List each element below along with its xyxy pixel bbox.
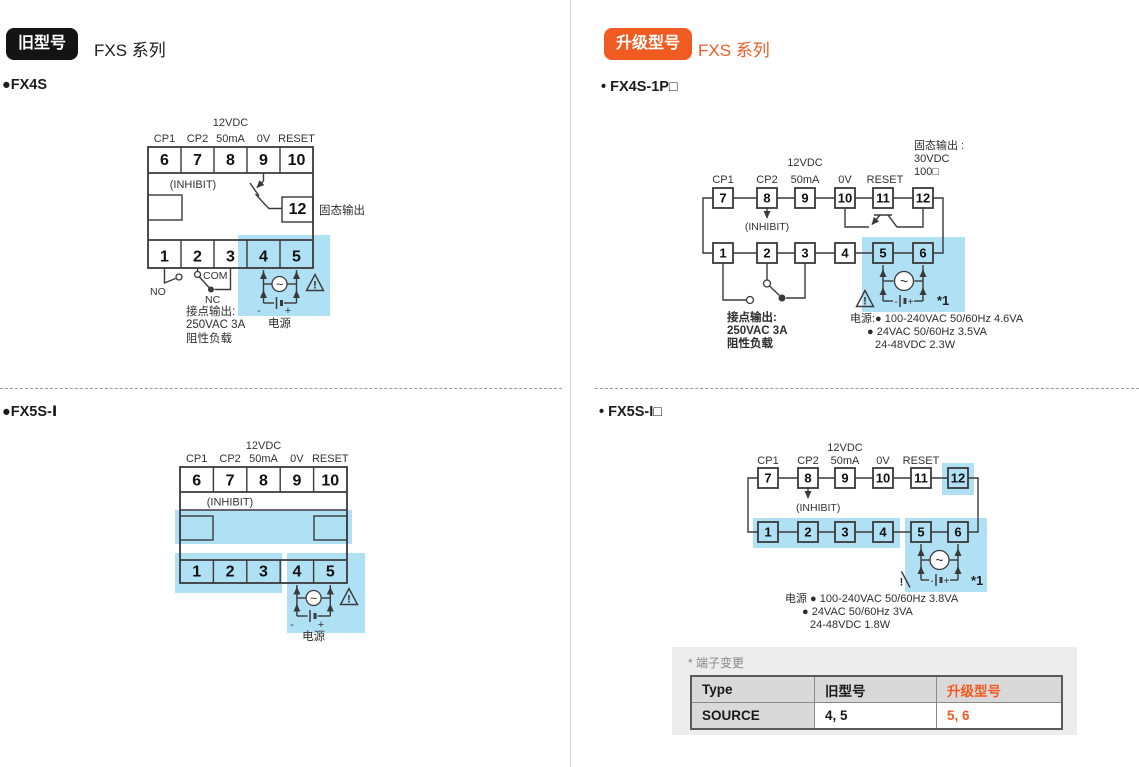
terminal-number: 2	[193, 249, 202, 266]
header-upgraded-model: 升级型号	[937, 676, 1063, 703]
svg-text:!: !	[347, 594, 351, 606]
ac-mark: ~	[276, 277, 284, 292]
terminal-number: 5	[879, 246, 886, 261]
header-type: Type	[691, 676, 815, 703]
terminal-number: 9	[841, 471, 848, 486]
signal-label-cp1: CP1	[154, 133, 175, 145]
table-row: SOURCE 4, 5 5, 6	[691, 703, 1062, 730]
plus-mark: +	[318, 619, 324, 631]
svg-text:!: !	[900, 577, 904, 589]
inhibit-label: (INHIBIT)	[170, 179, 216, 191]
terminal-number: 10	[288, 152, 306, 169]
section-title-fx5s: ●FX5S-Ⅰ	[2, 404, 57, 420]
terminal-number: 1	[192, 564, 201, 581]
upgraded-model-badge: 升级型号	[604, 28, 692, 60]
terminal-number: 10	[876, 471, 890, 486]
terminal-number: 3	[226, 249, 235, 266]
terminal-number: 3	[259, 564, 268, 581]
transistor-symbol	[845, 208, 869, 227]
terminal-number: 5	[292, 249, 301, 266]
terminal-number: 7	[719, 191, 726, 206]
terminal-number: 5	[917, 525, 924, 540]
contact-output-note: 阻性负载	[727, 336, 773, 350]
power-spec-line: 电源:● 100-240VAC 50/60Hz 4.6VA	[850, 311, 1024, 325]
terminal-number: 3	[801, 246, 808, 261]
terminal-number: 8	[226, 152, 235, 169]
inhibit-label: (INHIBIT)	[207, 497, 253, 509]
table-header-row: Type 旧型号 升级型号	[691, 676, 1062, 703]
terminal-number: 11	[914, 471, 928, 486]
terminal-number: 5	[326, 564, 335, 581]
fx5s-i-wiring-diagram: 12VDC CP1 CP2 50mA 0V RESET	[740, 438, 1030, 638]
plus-mark: +	[944, 576, 950, 587]
contact-output-note: 阻性负载	[186, 331, 232, 345]
contact-output-note: 接点输出:	[727, 310, 777, 324]
power-label: 电源	[302, 629, 325, 643]
minus-mark: -	[894, 297, 897, 308]
signal-label-cp1: CP1	[186, 453, 207, 465]
terminal-number: 4	[259, 249, 268, 266]
ssr-output-label: 固态输出	[319, 203, 365, 217]
inhibit-label: (INHIBIT)	[745, 221, 789, 233]
power-spec-line: 24-48VDC 1.8W	[810, 619, 891, 631]
transistor-symbol	[250, 173, 282, 209]
rating-label: 12VDC	[827, 442, 863, 454]
right-section-separator	[595, 388, 1139, 389]
terminal-number: 7	[764, 471, 771, 486]
signal-label-0v: 0V	[257, 133, 271, 145]
terminal-number: 10	[838, 191, 852, 206]
terminal-number: 4	[879, 525, 887, 540]
fx4s-old-wiring-diagram: 12VDC CP1 CP2 50mA 0V RESET 6 7 8 9 10 (…	[138, 112, 438, 352]
signal-label-cp2: CP2	[756, 174, 777, 186]
terminal-change-panel: * 端子变更 Type 旧型号 升级型号 SOURCE 4, 5 5, 6	[672, 647, 1077, 735]
ac-mark: ~	[935, 552, 943, 568]
ssr-output-label: 100□	[914, 166, 939, 178]
terminal-number: 1	[764, 525, 771, 540]
terminal-number: 10	[321, 473, 339, 490]
rating-label: 12VDC	[787, 157, 823, 169]
terminal-number: 8	[259, 473, 268, 490]
ssr-output-label: 固态输出 :	[914, 138, 964, 152]
signal-label-reset: RESET	[867, 174, 904, 186]
terminal-number: 6	[192, 473, 201, 490]
minus-mark: -	[930, 576, 933, 587]
signal-label-50ma: 50mA	[831, 455, 860, 467]
header-old-model: 旧型号	[815, 676, 937, 703]
terminal-number: 9	[259, 152, 268, 169]
contact-output-note: 250VAC 3A	[727, 325, 788, 337]
left-section-separator	[0, 388, 562, 389]
rating-label: 12VDC	[213, 117, 249, 129]
terminal-number: 2	[763, 246, 770, 261]
section-title-fx4s: ●FX4S	[2, 77, 47, 93]
signal-label-cp2: CP2	[219, 453, 240, 465]
terminal-number: 1	[719, 246, 726, 261]
signal-label-50ma: 50mA	[216, 133, 245, 145]
terminal-number: 6	[919, 246, 926, 261]
signal-label-50ma: 50mA	[791, 174, 820, 186]
terminal-number: 11	[876, 191, 890, 206]
old-series-title: FXS 系列	[94, 36, 166, 61]
signal-label-cp2: CP2	[187, 133, 208, 145]
plus-mark: +	[285, 305, 291, 317]
relay-contact-symbol	[723, 263, 805, 304]
column-divider	[570, 0, 571, 767]
signal-label-cp1: CP1	[757, 455, 778, 467]
table-caption: * 端子变更	[688, 654, 744, 671]
ssr-output-label: 30VDC	[914, 153, 950, 165]
section-title-fx5s-i: • FX5S-I□	[599, 404, 662, 420]
signal-label-reset: RESET	[278, 133, 315, 145]
contact-output-note: 接点输出:	[186, 304, 235, 318]
signal-label-reset: RESET	[903, 455, 940, 467]
terminal-number: 2	[226, 564, 235, 581]
inhibit-label: (INHIBIT)	[796, 502, 840, 514]
signal-label-0v: 0V	[838, 174, 852, 186]
rating-label: 12VDC	[246, 440, 282, 452]
minus-mark: -	[257, 305, 261, 317]
power-spec-line: 电源 ● 100-240VAC 50/60Hz 3.8VA	[785, 591, 959, 605]
note-ref: *1	[937, 293, 949, 308]
ac-mark: ~	[900, 273, 908, 289]
contact-output-note: 250VAC 3A	[186, 319, 246, 331]
terminal-number: 9	[801, 191, 808, 206]
power-spec-line: ● 24VAC 50/60Hz 3.5VA	[867, 326, 988, 338]
note-ref: *1	[971, 573, 983, 588]
power-spec-line: ● 24VAC 50/60Hz 3VA	[802, 606, 913, 618]
terminal-number: 7	[226, 473, 235, 490]
cell-new-terminals: 5, 6	[937, 703, 1063, 730]
signal-label-cp1: CP1	[712, 174, 733, 186]
fx5s-old-wiring-diagram: 12VDC CP1 CP2 50mA 0V RESET 6 7 8 9 10 (…	[168, 438, 468, 653]
terminal-number: 1	[160, 249, 169, 266]
terminal-number: 3	[841, 525, 848, 540]
terminal-number: 12	[951, 471, 965, 486]
option-slot-box	[148, 195, 182, 220]
signal-label-0v: 0V	[876, 455, 890, 467]
terminal-number: 2	[804, 525, 811, 540]
signal-label-0v: 0V	[290, 453, 304, 465]
terminal-number: 4	[841, 246, 849, 261]
terminal-number: 8	[763, 191, 770, 206]
no-label: NO	[150, 286, 166, 298]
terminal-change-table: Type 旧型号 升级型号 SOURCE 4, 5 5, 6	[690, 675, 1063, 730]
fx4s-1p-wiring-diagram: 固态输出 : 30VDC 100□ 12VDC CP1 CP2 50mA 0V …	[695, 135, 1035, 360]
terminal-number: 4	[292, 564, 301, 581]
terminal-number: 6	[160, 152, 169, 169]
terminal-number: 8	[804, 471, 811, 486]
minus-mark: -	[290, 619, 294, 631]
plus-mark: +	[908, 297, 914, 308]
nc-label: NC	[205, 294, 221, 306]
old-model-badge: 旧型号	[6, 28, 78, 60]
cell-type: SOURCE	[691, 703, 815, 730]
cell-old-terminals: 4, 5	[815, 703, 937, 730]
svg-text:!: !	[863, 296, 867, 308]
upgraded-series-title: FXS 系列	[698, 36, 770, 61]
com-label: COM	[203, 270, 228, 282]
ac-mark: ~	[310, 591, 318, 606]
terminal-number: 7	[193, 152, 202, 169]
middle-highlight	[175, 510, 352, 544]
svg-text:!: !	[313, 280, 317, 292]
terminal-number: 12	[916, 191, 930, 206]
section-title-fx4s-1p: • FX4S-1P□	[601, 79, 678, 95]
terminal-number: 9	[292, 473, 301, 490]
signal-label-50ma: 50mA	[249, 453, 278, 465]
power-spec-line: 24-48VDC 2.3W	[875, 339, 956, 351]
power-label: 电源	[268, 316, 291, 330]
terminal-number: 6	[954, 525, 961, 540]
signal-label-cp2: CP2	[797, 455, 818, 467]
terminal-number-12: 12	[289, 201, 307, 218]
manual-page: 旧型号 FXS 系列 ●FX4S ●FX5S-Ⅰ 12VDC CP1 CP2 5…	[0, 0, 1139, 767]
signal-label-reset: RESET	[312, 453, 349, 465]
